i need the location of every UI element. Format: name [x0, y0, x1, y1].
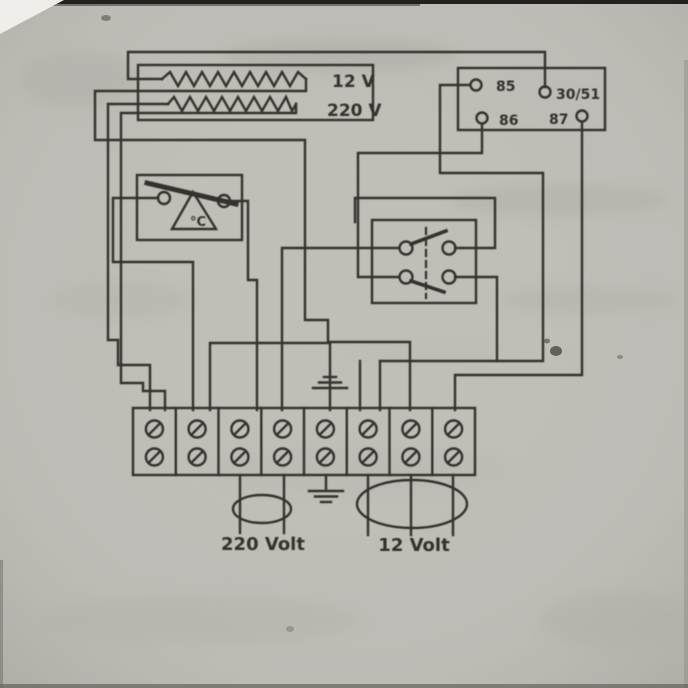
relay-label-87: 87: [549, 112, 568, 128]
cable-label-220v: 220 Volt: [221, 534, 305, 555]
heater-label-12v: 12 V: [332, 72, 376, 92]
heater-label-220v: 220 V: [327, 101, 382, 121]
relay-label-85: 85: [496, 79, 515, 95]
relay-label-3051: 30/51: [556, 87, 600, 103]
thermostat-label: °C: [190, 215, 206, 230]
relay-label-86: 86: [499, 113, 518, 129]
schematic-canvas: 12 V 220 V 85 30/51 86 87 °C: [0, 0, 688, 688]
scanned-circuit-diagram: 12 V 220 V 85 30/51 86 87 °C: [0, 0, 688, 688]
cable-label-12v: 12 Volt: [378, 535, 450, 556]
